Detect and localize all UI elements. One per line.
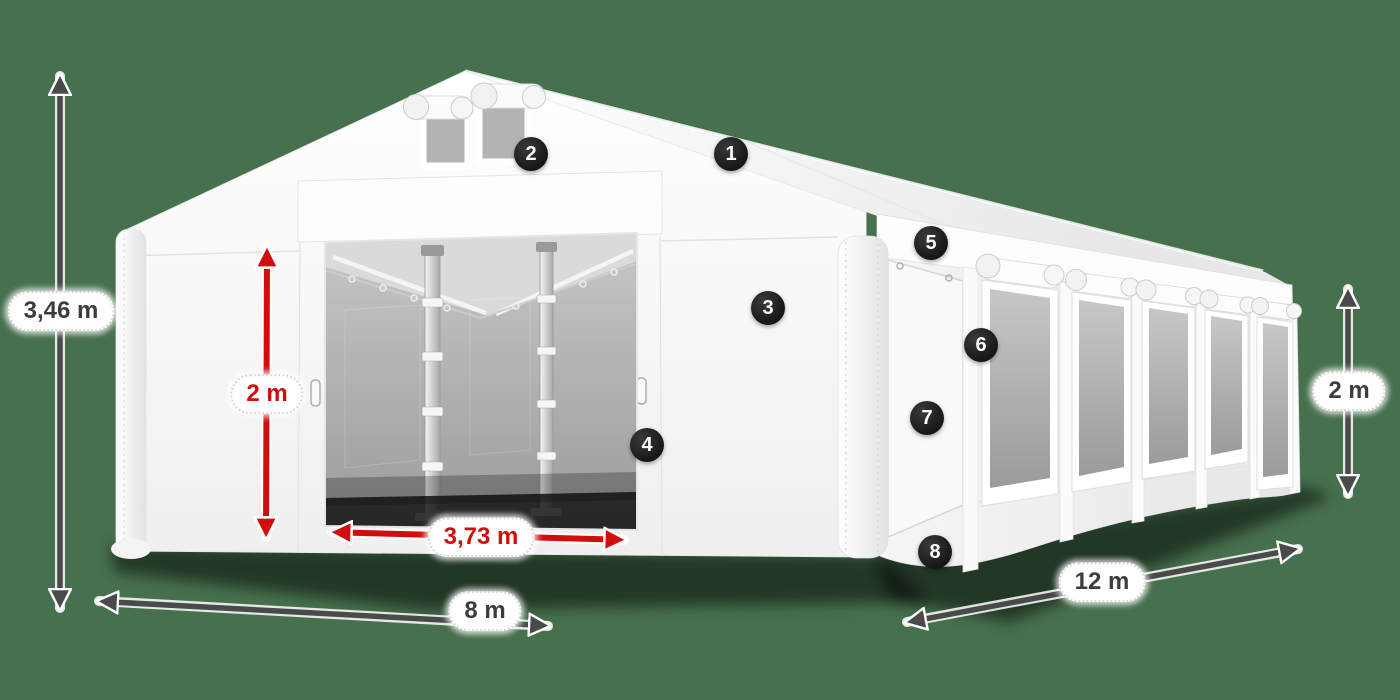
front-width-label: 8 m: [448, 591, 521, 631]
window-5: [1257, 317, 1293, 490]
window-2: [1072, 292, 1131, 492]
feature-marker-5[interactable]: 5: [914, 226, 948, 260]
door-header: [298, 171, 662, 242]
window-4: [1205, 310, 1248, 469]
tent-illustration: [0, 0, 1400, 700]
door-height-label: 2 m: [230, 374, 303, 414]
side-entrance-panel: [888, 260, 963, 537]
door-width-label: 3,73 m: [428, 517, 535, 557]
door-handle-right: [637, 378, 646, 404]
feature-marker-8[interactable]: 8: [918, 535, 952, 569]
feature-marker-2[interactable]: 2: [514, 137, 548, 171]
door-handle-left: [311, 380, 320, 406]
feature-marker-7[interactable]: 7: [910, 401, 944, 435]
side-length-label: 12 m: [1059, 562, 1146, 602]
window-3: [1142, 301, 1195, 479]
feature-marker-3[interactable]: 3: [751, 291, 785, 325]
door-interior: [325, 233, 637, 530]
window-1: [982, 280, 1058, 506]
feature-marker-4[interactable]: 4: [630, 428, 664, 462]
feature-marker-6[interactable]: 6: [964, 328, 998, 362]
tent-dimension-diagram: 3,46 m 2 m 3,73 m 8 m 12 m 2 m 1 2 3 4 5…: [0, 0, 1400, 700]
wall-height-label: 2 m: [1312, 371, 1385, 411]
feature-marker-1[interactable]: 1: [714, 137, 748, 171]
total-height-label: 3,46 m: [8, 291, 115, 331]
